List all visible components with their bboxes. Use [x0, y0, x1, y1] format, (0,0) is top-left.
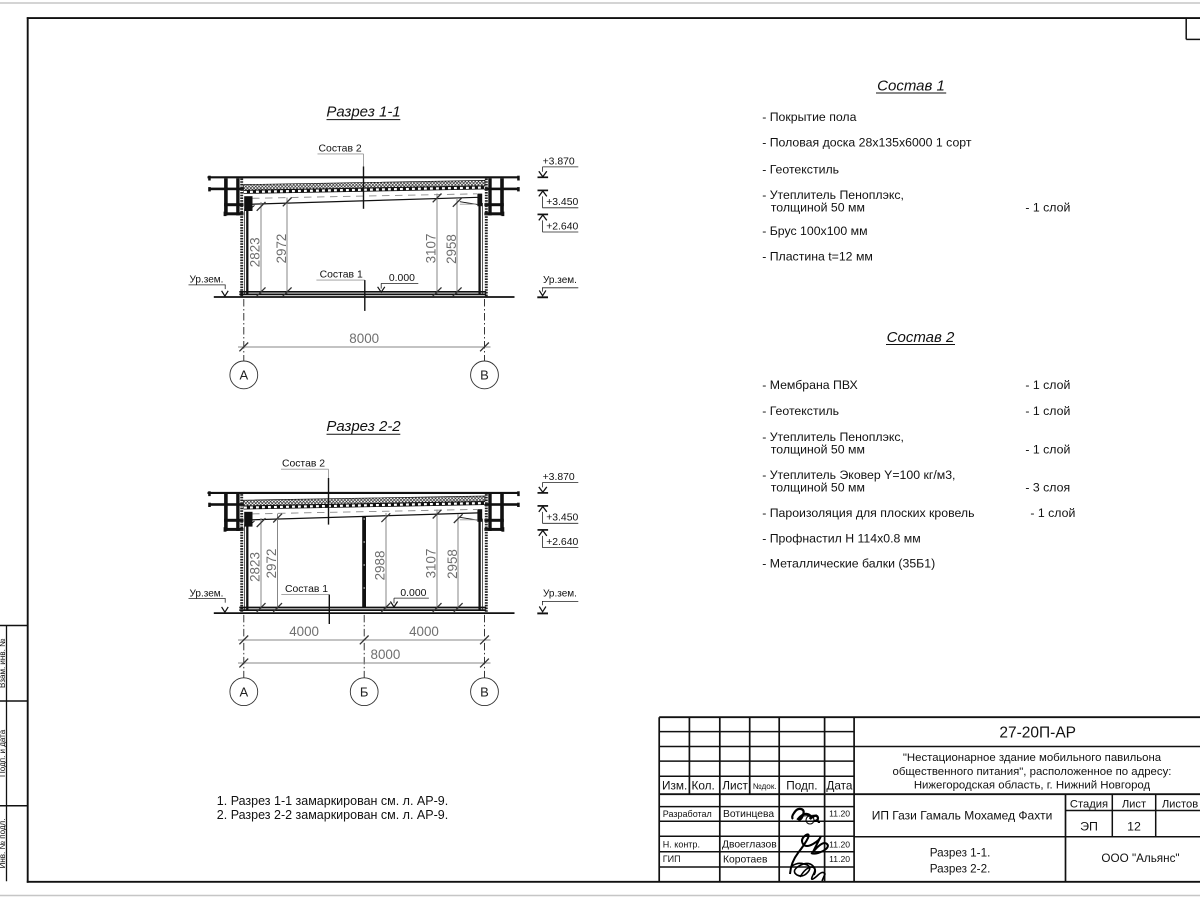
- svg-text:+3.450: +3.450: [546, 513, 578, 524]
- svg-text:- 3 слоя: - 3 слоя: [1025, 481, 1070, 495]
- svg-text:Ур.зем.: Ур.зем.: [543, 589, 577, 600]
- svg-text:- 1 слой: - 1 слой: [1025, 378, 1070, 392]
- svg-text:№док.: №док.: [753, 782, 777, 791]
- svg-text:- 1 слой: - 1 слой: [1025, 404, 1070, 418]
- svg-text:В: В: [480, 684, 489, 699]
- svg-text:3107: 3107: [424, 234, 439, 264]
- svg-text:Инв. № подл.: Инв. № подл.: [0, 819, 7, 869]
- svg-text:0.000: 0.000: [389, 273, 415, 284]
- svg-text:2958: 2958: [444, 234, 459, 264]
- svg-text:3107: 3107: [424, 549, 439, 579]
- svg-text:толщиной 50 мм: толщиной 50 мм: [771, 443, 865, 457]
- svg-text:А: А: [239, 368, 248, 383]
- svg-text:2823: 2823: [248, 237, 263, 267]
- svg-text:- Пластина t=12 мм: - Пластина t=12 мм: [762, 250, 873, 264]
- svg-text:ИП Гази Гамаль Мохамед Фахти: ИП Гази Гамаль Мохамед Фахти: [872, 809, 1053, 823]
- svg-text:+3.870: +3.870: [543, 472, 575, 483]
- svg-text:11.20: 11.20: [829, 839, 850, 849]
- svg-text:+2.640: +2.640: [546, 537, 578, 548]
- svg-text:- Пароизоляция для плоских кро: - Пароизоляция для плоских кровель: [762, 506, 974, 520]
- svg-text:В: В: [480, 368, 489, 383]
- svg-text:ГИП: ГИП: [663, 854, 681, 864]
- svg-text:2988: 2988: [372, 551, 387, 581]
- svg-text:11.20: 11.20: [829, 809, 850, 819]
- svg-text:общественного питания", распол: общественного питания", расположенное по…: [893, 766, 1172, 778]
- svg-text:- Геотекстиль: - Геотекстиль: [762, 404, 839, 418]
- svg-text:2972: 2972: [264, 549, 279, 579]
- svg-text:- Покрытие пола: - Покрытие пола: [762, 110, 856, 124]
- svg-text:Нижегородская область, г. Нижн: Нижегородская область, г. Нижний Новгоро…: [914, 780, 1151, 792]
- svg-text:Кол.: Кол.: [692, 779, 715, 793]
- svg-text:2958: 2958: [445, 549, 460, 579]
- svg-text:Вотинцева: Вотинцева: [723, 809, 774, 820]
- svg-text:ЭП: ЭП: [1080, 820, 1098, 834]
- svg-text:толщиной 50 мм: толщиной 50 мм: [771, 201, 865, 215]
- svg-text:12: 12: [1127, 820, 1141, 834]
- svg-text:Н. контр.: Н. контр.: [663, 840, 700, 850]
- svg-text:+3.450: +3.450: [546, 197, 578, 208]
- svg-text:11.20: 11.20: [829, 854, 850, 864]
- svg-text:Изм.: Изм.: [662, 779, 687, 793]
- svg-text:Листов: Листов: [1162, 799, 1198, 811]
- svg-text:- Половая доска 28х135х6000 1: - Половая доска 28х135х6000 1 сорт: [762, 136, 972, 150]
- svg-text:Подп. и дата: Подп. и дата: [0, 729, 7, 777]
- svg-text:4000: 4000: [409, 624, 439, 639]
- svg-text:Разрез 1-1: Разрез 1-1: [326, 104, 400, 121]
- svg-text:Состав 1: Состав 1: [285, 584, 328, 595]
- svg-text:"Нестационарное здание мобильн: "Нестационарное здание мобильного павиль…: [903, 752, 1162, 764]
- svg-text:Лист: Лист: [1122, 799, 1146, 811]
- svg-text:Подп.: Подп.: [786, 779, 817, 793]
- svg-text:- 1 слой: - 1 слой: [1025, 443, 1070, 457]
- svg-text:Б: Б: [360, 684, 369, 699]
- svg-text:Разрез 1-1.: Разрез 1-1.: [930, 846, 991, 859]
- svg-text:Разрез 2-2: Разрез 2-2: [326, 418, 401, 435]
- svg-text:- Мембрана ПВХ: - Мембрана ПВХ: [762, 378, 858, 392]
- svg-text:толщиной 50 мм: толщиной 50 мм: [771, 481, 865, 495]
- svg-text:Состав 1: Состав 1: [877, 78, 945, 95]
- svg-text:1. Разрез 1-1 замаркирован см.: 1. Разрез 1-1 замаркирован см. л. АР-9.: [217, 794, 448, 808]
- svg-text:Состав 2: Состав 2: [887, 329, 955, 346]
- svg-text:0.000: 0.000: [400, 588, 426, 599]
- svg-text:- Металлические балки (35Б1): - Металлические балки (35Б1): [762, 557, 935, 571]
- svg-text:+2.640: +2.640: [546, 221, 578, 232]
- svg-text:8000: 8000: [371, 647, 401, 662]
- svg-text:Ур.зем.: Ур.зем.: [543, 275, 577, 286]
- svg-text:Взам. инв. №: Взам. инв. №: [0, 638, 7, 688]
- svg-text:+3.870: +3.870: [543, 156, 575, 167]
- svg-text:Разрез 2-2.: Разрез 2-2.: [930, 862, 991, 875]
- svg-text:- Брус 100х100 мм: - Брус 100х100 мм: [762, 224, 867, 238]
- svg-text:Ур.зем.: Ур.зем.: [190, 588, 224, 599]
- svg-text:- Профнастил Н 114х0.8 мм: - Профнастил Н 114х0.8 мм: [762, 531, 920, 545]
- svg-text:4000: 4000: [289, 624, 319, 639]
- svg-text:А: А: [239, 684, 248, 699]
- svg-text:Коротаев: Коротаев: [723, 854, 768, 865]
- svg-text:Двоеглазов: Двоеглазов: [722, 840, 777, 851]
- svg-text:2972: 2972: [274, 234, 289, 264]
- svg-text:Лист: Лист: [722, 779, 748, 793]
- svg-text:Состав 1: Состав 1: [320, 270, 363, 281]
- svg-text:2823: 2823: [248, 552, 263, 582]
- svg-text:8000: 8000: [349, 331, 379, 346]
- svg-text:Состав 2: Состав 2: [282, 459, 325, 470]
- svg-text:27-20П-АР: 27-20П-АР: [999, 725, 1076, 742]
- svg-text:- 1 слой: - 1 слой: [1025, 201, 1070, 215]
- svg-text:- 1 слой: - 1 слой: [1030, 506, 1075, 520]
- svg-text:Разработал: Разработал: [663, 809, 712, 819]
- svg-text:Состав 2: Состав 2: [319, 143, 362, 154]
- svg-text:Дата: Дата: [826, 779, 853, 793]
- svg-text:- Геотекстиль: - Геотекстиль: [762, 163, 839, 177]
- svg-text:ООО "Альянс": ООО "Альянс": [1101, 852, 1179, 865]
- svg-text:Стадия: Стадия: [1070, 799, 1108, 811]
- svg-text:2. Разрез 2-2 замаркирован см.: 2. Разрез 2-2 замаркирован см. л. АР-9.: [217, 808, 448, 822]
- svg-text:Ур.зем.: Ур.зем.: [190, 275, 224, 286]
